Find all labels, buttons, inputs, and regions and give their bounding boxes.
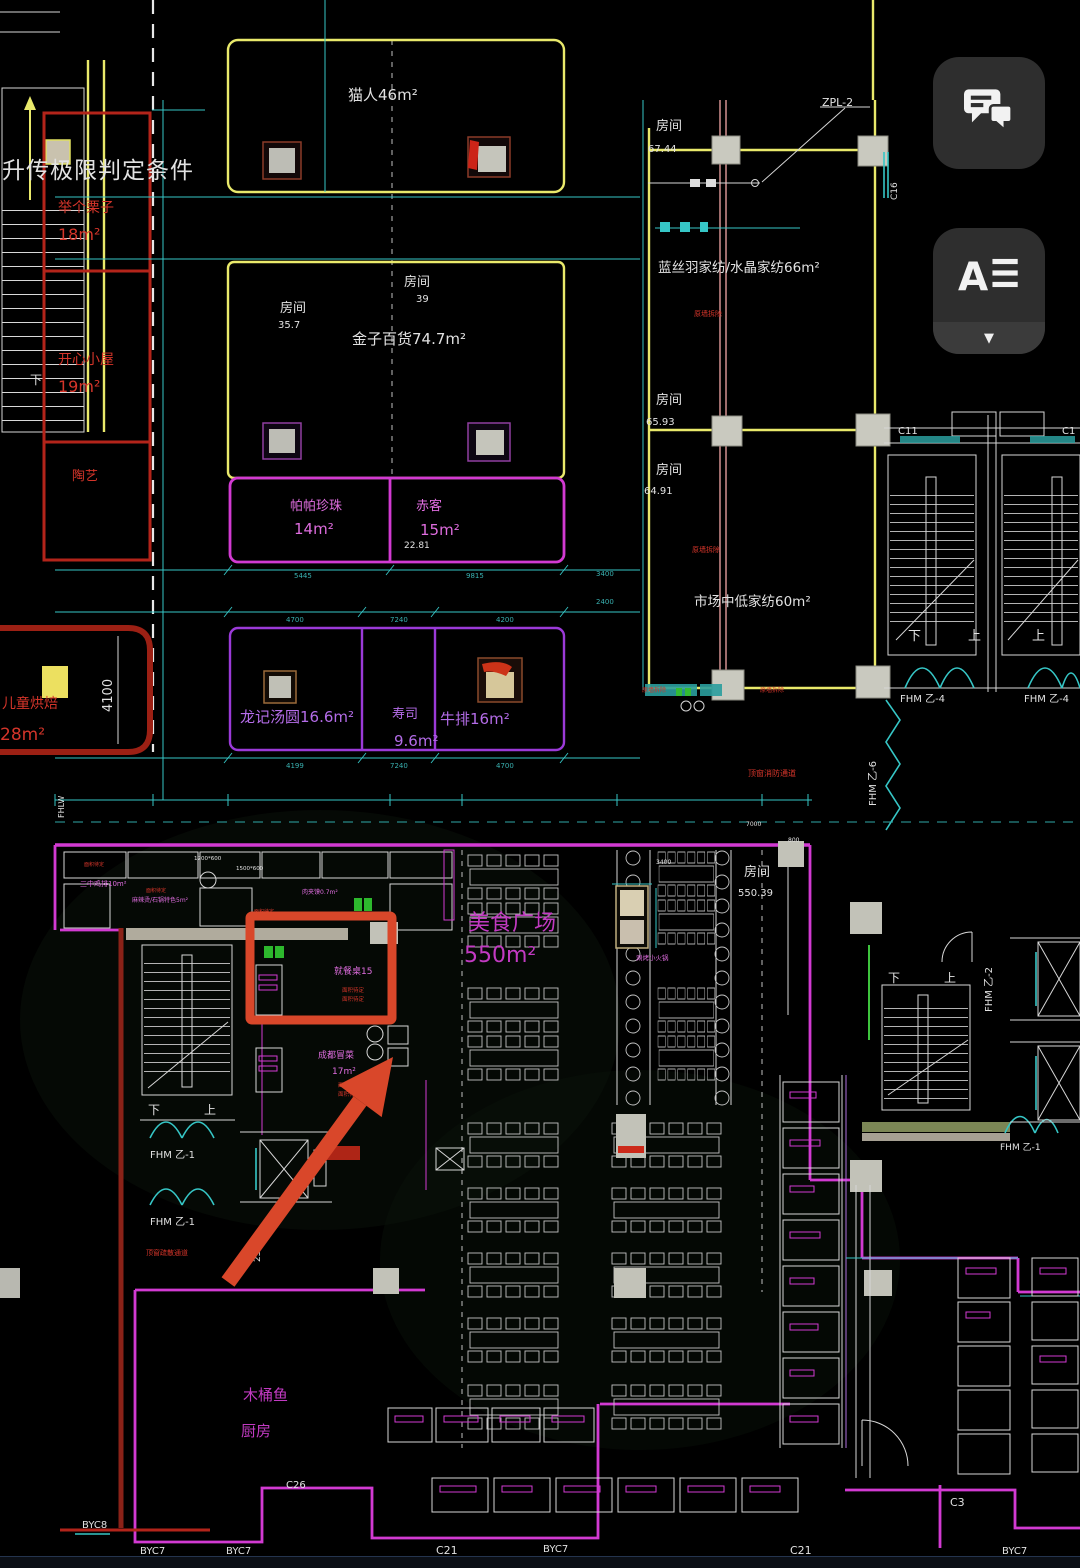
room-number: 64.91: [644, 486, 673, 497]
stall-label: 肉夹馍0.7m²: [302, 888, 338, 896]
door-code: FHM 乙-1: [150, 1216, 195, 1228]
code-label: C3: [950, 1496, 965, 1509]
stair-direction: 下: [30, 373, 42, 387]
code-label: C26: [286, 1480, 306, 1491]
room-label: 房间: [656, 462, 682, 478]
room-number: 22.81: [404, 541, 430, 551]
zone-area: 550m²: [464, 943, 536, 968]
stall-label: 麻辣烫/石锅特色5m²: [132, 896, 189, 904]
stall-label: 三中鸡排10m²: [80, 879, 127, 888]
zone-label: 美食广场: [468, 911, 556, 936]
room-number: 35.7: [278, 320, 300, 331]
centerlines: [153, 0, 392, 752]
code-label: BYC7: [543, 1544, 568, 1555]
shop-area: 9.6m²: [394, 732, 438, 750]
code-label: BYC8: [82, 1520, 107, 1531]
stall-row-pearl: [230, 478, 564, 562]
shop-area: 28m²: [0, 725, 45, 745]
door-code: FHM 乙-1: [150, 1149, 195, 1161]
shop-label: 赤客: [416, 498, 442, 514]
dim-label: 3400: [596, 570, 614, 578]
code-label: C1: [1062, 426, 1075, 437]
room-number: 39: [416, 294, 429, 305]
shop-label: 龙记汤圆16.6m²: [240, 708, 354, 726]
room-label: 房间: [744, 864, 770, 880]
overlay-text: 升传极限判定条件: [2, 158, 194, 184]
code-label: C16: [890, 182, 900, 200]
dim-label: 4700: [496, 762, 514, 770]
stairwell-right-mid: [862, 932, 1080, 1141]
door-code: FHM 乙-4: [1024, 693, 1069, 705]
dim-label: 7240: [390, 762, 408, 770]
shop-label: 猫人46m²: [348, 86, 418, 104]
stair-direction: 上: [944, 971, 956, 985]
room-label: 房间: [656, 392, 682, 408]
demolition-note: 原墙拆除: [692, 545, 720, 554]
shop-label: 木桶鱼: [243, 1386, 288, 1404]
shop-area: 18m²: [58, 225, 100, 244]
stall-label: 涮烤小火锅: [636, 953, 669, 962]
tbd-note: 面积待定: [342, 995, 365, 1003]
demolition-note: 原墙拆除: [694, 309, 722, 318]
stair-direction: 上: [1032, 629, 1045, 644]
dim-vertical: 4100: [101, 679, 116, 712]
shop-label: 儿童烘焙: [2, 695, 58, 712]
shop-area: 14m²: [294, 520, 334, 538]
shop-area: 15m²: [420, 521, 460, 539]
fire-route-note: 顶窗消防通道: [748, 768, 796, 778]
shop-area: 19m²: [58, 377, 100, 396]
text-button-letter: A: [958, 255, 988, 298]
tbd-note: 面积待定: [146, 887, 166, 894]
room-number: 65.93: [646, 417, 675, 428]
stair-direction: 上: [968, 629, 981, 644]
chevron-down-icon: ▼: [984, 331, 994, 346]
door-code: FHM 乙-4: [900, 693, 945, 705]
dimension-lines-top: [55, 197, 640, 259]
dim-label: 3400: [656, 859, 671, 866]
code-label: ZPL-2: [822, 96, 853, 109]
room-jinzi: [228, 262, 564, 478]
room-number: 67.44: [648, 144, 677, 155]
text-style-button[interactable]: A ▼: [933, 228, 1045, 354]
stair-direction: 下: [908, 629, 921, 644]
highlighted-stall-label: 就餐桌15: [334, 965, 372, 977]
equip-size: 1500*600: [236, 866, 264, 872]
cad-viewer-app: 升传极限判定条件 举个栗子 18m² 开心小屋 19m² 陶艺 儿童烘焙 28m…: [0, 0, 1080, 1568]
shop-label: 牛排16m²: [440, 710, 510, 728]
tbd-note: 面积待定: [342, 986, 365, 994]
demolition-note: 原墙拆除: [642, 686, 666, 694]
shop-label: 开心小屋: [58, 352, 114, 368]
chat-bubbles-icon: [961, 86, 1017, 140]
dropdown-caret[interactable]: ▼: [933, 322, 1045, 354]
tbd-note: 面积待定: [84, 861, 104, 868]
bottom-bar: [0, 1556, 1080, 1568]
dim-label: 4199: [286, 762, 304, 770]
dim-label: 2400: [596, 598, 614, 606]
dim-label: 7000: [746, 821, 761, 828]
dim-label: 4200: [496, 616, 514, 624]
dim-label: 5445: [294, 572, 312, 580]
demolition-note: 原墙拆除: [760, 686, 784, 694]
door-code: FHM 乙-2: [983, 967, 995, 1012]
shop-label: 市场中低家纺60m²: [694, 593, 811, 610]
equip-size: 1200*600: [194, 856, 222, 862]
room-label: 房间: [404, 274, 430, 290]
floor-plan-canvas[interactable]: 升传极限判定条件 举个栗子 18m² 开心小屋 19m² 陶艺 儿童烘焙 28m…: [0, 0, 1080, 1568]
shop-label: 帕帕珍珠: [290, 499, 342, 514]
shop-label: 金子百货74.7m²: [352, 330, 466, 348]
door-code: FHM 乙-1: [1000, 1142, 1041, 1153]
room-label: 房间: [656, 118, 682, 134]
stair-direction: 下: [148, 1103, 160, 1117]
stair-direction: 下: [888, 971, 900, 985]
stairwell-top-right: [884, 412, 1080, 692]
shop-label: 蓝丝羽家纺/水晶家纺66m²: [658, 259, 820, 276]
shop-label: 举个栗子: [58, 200, 114, 216]
accordion-door-fhm6: [886, 700, 900, 830]
dim-label: 800: [788, 837, 800, 844]
room-label: 房间: [280, 300, 306, 316]
dimension-rows-mid: [55, 565, 640, 763]
dim-label: 9815: [466, 572, 484, 580]
text-lines-icon: A: [933, 228, 1045, 322]
chat-button[interactable]: [933, 57, 1045, 169]
code-label: FHLW: [57, 796, 66, 818]
stall-label: 成都冒菜: [318, 1049, 354, 1061]
escalator: [0, 12, 104, 432]
stair-direction: 上: [204, 1103, 216, 1117]
background-tint: [20, 810, 900, 1450]
code-label: C11: [898, 426, 918, 437]
shop-label: 厨房: [241, 1422, 271, 1440]
shop-label: 陶艺: [72, 468, 98, 484]
shop-label: 寿司: [392, 707, 418, 722]
dim-label: 7240: [390, 616, 408, 624]
evac-route-note: 顶窗疏散通道: [146, 1248, 188, 1257]
stall-area: 17m²: [332, 1067, 356, 1077]
door-code: FHM 乙-6: [867, 761, 879, 806]
dim-label: 4700: [286, 616, 304, 624]
room-number: 550.39: [738, 888, 773, 899]
